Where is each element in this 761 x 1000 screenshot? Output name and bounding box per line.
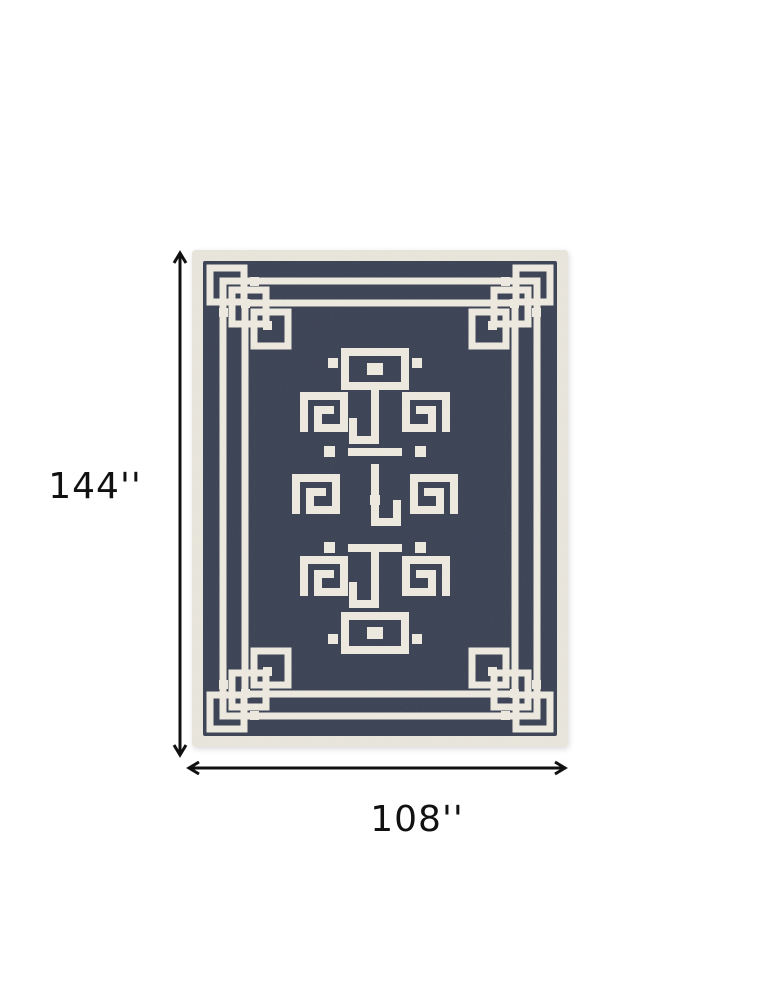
height-dimension-label: 144'' xyxy=(30,466,160,507)
width-dimension-label: 108'' xyxy=(352,799,482,840)
product-dimension-diagram: 144'' 108'' xyxy=(0,0,761,1000)
fabric-texture-overlay xyxy=(192,250,568,747)
rug-image xyxy=(192,250,568,747)
